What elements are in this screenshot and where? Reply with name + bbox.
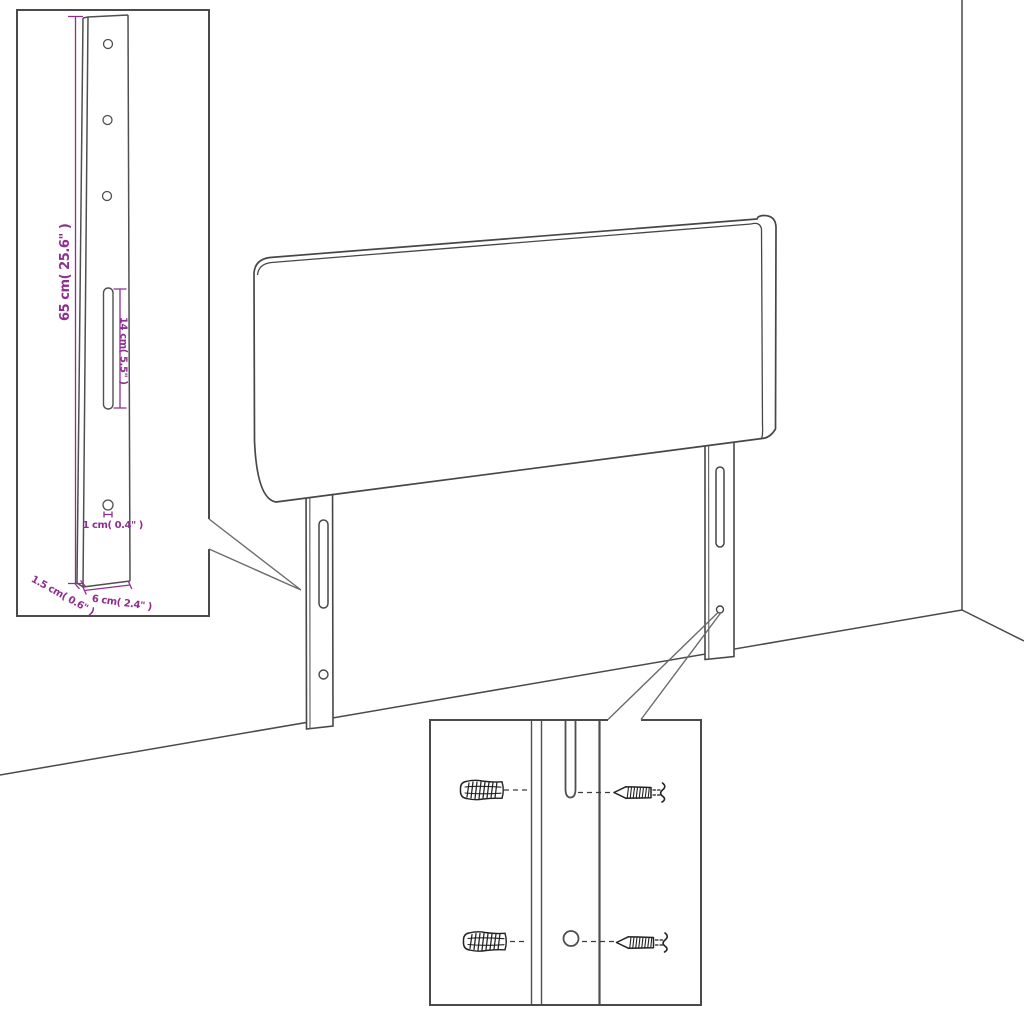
screw-icon xyxy=(617,933,668,952)
leg-detail-callout-wedge xyxy=(209,519,301,590)
leg-slot xyxy=(104,288,114,409)
alignment-dashes xyxy=(504,790,614,942)
hole-dimension-label: 1 cm( 0.4" ) xyxy=(83,520,143,531)
leg-hole-1 xyxy=(104,40,113,49)
height-dimension-label: 65 cm( 25.6" ) xyxy=(58,224,73,321)
diagram-canvas: 65 cm( 25.6" ) 14 cm( 5.5" ) 1 cm( 0.4" … xyxy=(0,0,1024,1024)
wall-plug-icon xyxy=(460,780,503,799)
leg-hole-3 xyxy=(103,192,112,201)
thickness-dimension-label: 1.5 cm( 0.6" ) xyxy=(29,574,96,618)
leg-hole-2 xyxy=(103,116,112,125)
headboard-panel-outline xyxy=(254,215,776,502)
slot-dimension-label: 14 cm( 5.5" ) xyxy=(118,317,129,385)
floor-line-right xyxy=(962,610,1024,641)
floor-line-left xyxy=(0,610,962,775)
left-leg xyxy=(306,468,333,730)
mounting-detail-inset xyxy=(430,613,721,1006)
width-dimension-line xyxy=(83,581,132,595)
headboard-dimension-diagram: 65 cm( 25.6" ) 14 cm( 5.5" ) 1 cm( 0.4" … xyxy=(0,0,1024,1024)
headboard-panel xyxy=(254,215,776,502)
mounting-slot xyxy=(566,721,576,798)
leg-detail-drawing xyxy=(77,15,130,587)
right-leg xyxy=(705,415,734,660)
mounting-leg-strip xyxy=(532,721,600,1004)
width-dimension-label: 6 cm( 2.4" ) xyxy=(91,594,152,613)
screw-icon xyxy=(614,783,665,802)
wall-plug-icon xyxy=(463,932,506,951)
leg-hole-4 xyxy=(103,500,113,510)
mounting-callout-wedge xyxy=(608,613,721,720)
hole-dimension-bracket xyxy=(104,512,112,518)
mounting-hole xyxy=(564,931,579,946)
